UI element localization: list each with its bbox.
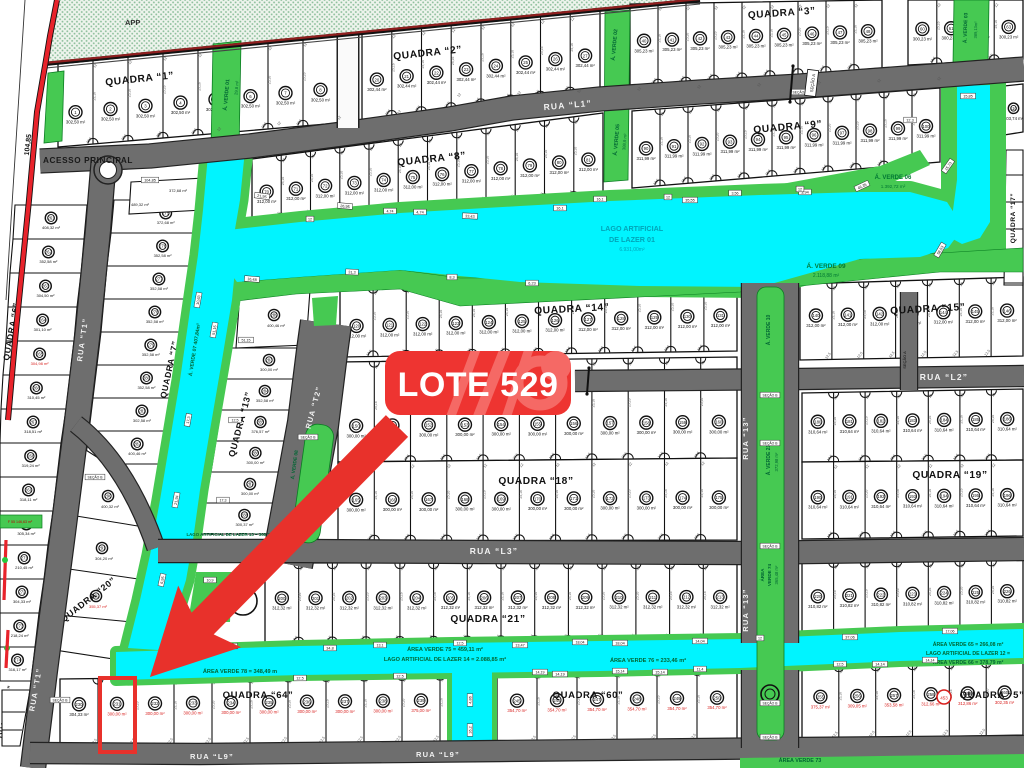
svg-text:172: 172 (606, 496, 614, 501)
svg-text:300,00 m²: 300,00 m² (492, 432, 512, 437)
svg-text:81: 81 (586, 157, 591, 162)
svg-text:312,00 m²: 312,00 m² (838, 322, 858, 327)
svg-text:312,32 m²: 312,32 m² (576, 605, 596, 610)
svg-text:300,00 m²: 300,00 m² (107, 711, 127, 716)
svg-text:120: 120 (353, 324, 361, 329)
svg-text:286: 286 (252, 451, 260, 456)
svg-text:300,00 m²: 300,00 m² (455, 507, 475, 512)
svg-text:25,16: 25,16 (298, 593, 302, 602)
svg-text:25,16: 25,16 (928, 587, 932, 596)
svg-text:312,32 m²: 312,32 m² (340, 605, 360, 610)
svg-text:310,64 m²: 310,64 m² (934, 427, 954, 432)
svg-text:174: 174 (679, 495, 687, 500)
svg-text:25,16: 25,16 (326, 699, 330, 708)
svg-text:305,23 m²: 305,23 m² (802, 41, 822, 46)
svg-text:300,37 m²: 300,37 m² (235, 522, 254, 527)
svg-text:312,00 m²: 312,00 m² (612, 326, 632, 331)
svg-text:310,82 m²: 310,82 m² (808, 604, 828, 609)
svg-text:15,14: 15,14 (616, 670, 625, 674)
svg-text:403,74 m²: 403,74 m² (1004, 116, 1024, 121)
svg-text:192: 192 (877, 494, 885, 499)
svg-text:352,58 m²: 352,58 m² (39, 259, 58, 264)
svg-text:25,16: 25,16 (486, 156, 490, 165)
svg-text:300,00 m²: 300,00 m² (246, 460, 265, 465)
svg-text:155: 155 (534, 422, 542, 427)
svg-text:210: 210 (615, 595, 623, 600)
svg-text:310,82 m²: 310,82 m² (966, 600, 986, 605)
svg-text:12,5: 12,5 (457, 642, 464, 646)
svg-text:302,44 m²: 302,44 m² (575, 63, 595, 68)
svg-text:318,11 m²: 318,11 m² (20, 497, 38, 502)
svg-text:310,64 m²: 310,64 m² (871, 428, 891, 433)
svg-text:210,45 m²: 210,45 m² (15, 565, 34, 570)
svg-text:204: 204 (413, 595, 421, 600)
svg-text:311,99 m²: 311,99 m² (636, 156, 656, 161)
svg-text:12,5: 12,5 (296, 677, 303, 681)
svg-text:SEÇÃO B: SEÇÃO B (87, 475, 103, 480)
svg-text:205: 205 (447, 595, 455, 600)
svg-text:305,23 m²: 305,23 m² (718, 45, 738, 50)
svg-text:25,16: 25,16 (959, 415, 963, 424)
svg-text:26: 26 (553, 57, 558, 62)
svg-text:25,16: 25,16 (686, 33, 690, 42)
svg-text:25,16: 25,16 (534, 592, 538, 601)
svg-text:16,1: 16,1 (597, 198, 604, 202)
svg-text:25,16: 25,16 (537, 697, 541, 706)
svg-text:25,16: 25,16 (339, 171, 343, 180)
svg-text:302,44 m²: 302,44 m² (516, 70, 536, 75)
svg-text:284: 284 (261, 389, 269, 394)
svg-text:302,44 m²: 302,44 m² (397, 84, 417, 89)
svg-text:25,16: 25,16 (303, 72, 307, 81)
svg-text:25,16: 25,16 (991, 307, 995, 316)
svg-text:ÁREA VERDE 75 = 459,11 m²: ÁREA VERDE 75 = 459,11 m² (407, 646, 483, 653)
svg-text:400,46 m²: 400,46 m² (128, 451, 147, 456)
svg-text:25,16: 25,16 (433, 592, 437, 601)
svg-text:12,3: 12,3 (906, 119, 913, 123)
svg-text:25,16: 25,16 (268, 76, 272, 85)
svg-text:300,00 m²: 300,00 m² (346, 433, 366, 438)
svg-text:300,00 m²: 300,00 m² (528, 431, 548, 436)
svg-text:193: 193 (909, 494, 917, 499)
svg-text:QUADRA “60”: QUADRA “60” (553, 690, 624, 701)
svg-text:Á. VERDE 03: Á. VERDE 03 (961, 12, 969, 43)
svg-text:311,99 m²: 311,99 m² (804, 143, 824, 148)
svg-text:25,16: 25,16 (399, 592, 403, 601)
svg-text:QUADRA “21”: QUADRA “21” (450, 614, 525, 625)
svg-text:RUA “L3”: RUA “L3” (470, 546, 518, 556)
svg-text:354,70 m²: 354,70 m² (667, 706, 687, 711)
svg-text:ÁREA VERDE 73: ÁREA VERDE 73 (779, 757, 822, 764)
svg-text:123: 123 (452, 321, 460, 326)
svg-text:354,70 m²: 354,70 m² (707, 705, 727, 710)
svg-text:312,32 m²: 312,32 m² (542, 605, 562, 610)
svg-text:25,16: 25,16 (366, 592, 370, 601)
svg-text:312,00 m²: 312,00 m² (678, 324, 698, 329)
svg-text:25,16: 25,16 (212, 701, 216, 710)
svg-text:95: 95 (784, 135, 789, 140)
svg-text:QUADRA “19”: QUADRA “19” (912, 470, 987, 481)
svg-text:25,16: 25,16 (555, 490, 559, 499)
svg-text:145: 145 (972, 309, 980, 314)
svg-text:250: 250 (713, 695, 721, 700)
svg-text:310,82 m²: 310,82 m² (840, 603, 860, 608)
svg-text:SEÇÃO B: SEÇÃO B (762, 701, 778, 706)
svg-text:372,68 m²: 372,68 m² (157, 220, 176, 225)
svg-text:QUADRA “18”: QUADRA “18” (498, 476, 573, 487)
svg-text:311,99 m²: 311,99 m² (720, 149, 740, 154)
svg-text:15,14: 15,14 (655, 671, 665, 675)
svg-text:352,58 m²: 352,58 m² (146, 319, 165, 324)
svg-text:283: 283 (265, 358, 273, 363)
svg-text:25,16: 25,16 (742, 30, 746, 39)
svg-text:156: 156 (570, 421, 578, 426)
svg-text:230: 230 (75, 702, 83, 707)
svg-text:273: 273 (16, 624, 24, 629)
svg-text:271: 271 (21, 556, 29, 561)
svg-text:13,47: 13,47 (515, 644, 525, 648)
svg-text:96: 96 (812, 133, 817, 138)
svg-text:258: 258 (927, 692, 935, 697)
svg-text:60: 60 (920, 27, 925, 32)
svg-text:312,00 m²: 312,00 m² (432, 182, 452, 187)
svg-text:304,98 m²: 304,98 m² (31, 361, 50, 366)
svg-text:130: 130 (684, 314, 692, 319)
svg-text:25,16: 25,16 (410, 491, 414, 500)
svg-text:262: 262 (45, 250, 53, 255)
svg-text:10,9: 10,9 (207, 579, 214, 583)
svg-text:150: 150 (353, 424, 361, 429)
svg-text:APP: APP (125, 18, 140, 27)
svg-text:141: 141 (844, 312, 852, 317)
svg-text:QUADRA “5”: QUADRA “5” (960, 690, 1024, 701)
svg-text:27: 27 (583, 53, 588, 58)
svg-text:25,16: 25,16 (896, 489, 900, 498)
svg-text:25,16: 25,16 (483, 490, 487, 499)
svg-text:25,16: 25,16 (628, 489, 632, 498)
svg-text:SEÇÃO B: SEÇÃO B (762, 441, 778, 446)
svg-text:98: 98 (868, 128, 873, 133)
svg-text:290: 290 (104, 494, 112, 499)
svg-text:285: 285 (257, 420, 265, 425)
svg-text:25,16: 25,16 (440, 698, 444, 707)
svg-text:42: 42 (698, 36, 703, 41)
svg-text:QUADRA “17”: QUADRA “17” (1010, 193, 1017, 243)
svg-text:45: 45 (782, 32, 787, 37)
svg-text:300,00 m²: 300,00 m² (673, 505, 693, 510)
svg-text:237: 237 (341, 699, 349, 704)
svg-text:268: 268 (27, 454, 35, 459)
svg-text:238: 238 (379, 699, 387, 704)
svg-text:236: 236 (303, 699, 311, 704)
svg-text:ÁREA VERDE 78 = 348,49 m: ÁREA VERDE 78 = 348,49 m (203, 668, 277, 675)
svg-text:ÁREA: ÁREA (759, 568, 765, 582)
svg-text:190: 190 (814, 495, 822, 500)
svg-text:312,00 m²: 312,00 m² (315, 193, 335, 198)
svg-text:SEÇÃO A: SEÇÃO A (902, 351, 907, 369)
svg-text:312,00 m²: 312,00 m² (413, 332, 433, 337)
svg-text:25,16: 25,16 (688, 135, 692, 144)
svg-text:25,16: 25,16 (833, 490, 837, 499)
svg-text:316,17 m²: 316,17 m² (8, 667, 27, 672)
svg-text:ACESSO PRINCIPAL: ACESSO PRINCIPAL (43, 156, 133, 165)
svg-text:25,16: 25,16 (928, 415, 932, 424)
svg-text:25,16: 25,16 (510, 50, 514, 59)
svg-text:220: 220 (814, 594, 822, 599)
svg-text:37,06: 37,06 (845, 636, 855, 640)
svg-text:300,00 m²: 300,00 m² (373, 708, 393, 713)
svg-text:312,66 m²: 312,66 m² (921, 702, 941, 707)
svg-text:300,00 m²: 300,00 m² (709, 505, 729, 510)
svg-text:300,00 m²: 300,00 m² (600, 506, 620, 511)
svg-text:22: 22 (434, 70, 439, 75)
svg-text:25,16: 25,16 (959, 488, 963, 497)
svg-text:265: 265 (36, 352, 44, 357)
svg-text:25,16: 25,16 (991, 488, 995, 497)
svg-text:305,23 m²: 305,23 m² (634, 48, 654, 53)
svg-text:14,14: 14,14 (875, 663, 885, 667)
svg-text:14,19: 14,19 (555, 673, 565, 677)
svg-text:312,00 m²: 312,00 m² (286, 196, 306, 201)
svg-text:353,58 m²: 353,58 m² (884, 703, 904, 708)
svg-text:SEÇÃO B: SEÇÃO B (52, 698, 68, 703)
svg-text:25,16: 25,16 (912, 690, 916, 699)
svg-text:25,16: 25,16 (826, 26, 830, 35)
svg-text:25,16: 25,16 (865, 489, 869, 498)
svg-text:Á. VERDE 21: Á. VERDE 21 (765, 445, 772, 476)
svg-text:25,16: 25,16 (744, 130, 748, 139)
svg-text:279: 279 (147, 343, 155, 348)
svg-text:4,86: 4,86 (469, 696, 473, 703)
svg-text:312,00 m²: 312,00 m² (966, 319, 986, 324)
svg-text:3,56: 3,56 (732, 192, 739, 196)
svg-text:310,64 m²: 310,64 m² (871, 504, 891, 509)
svg-text:74: 74 (381, 178, 386, 183)
svg-text:375,00 m²: 375,00 m² (411, 708, 431, 713)
svg-text:25,16: 25,16 (406, 311, 410, 320)
svg-text:127: 127 (585, 317, 593, 322)
svg-text:169: 169 (498, 497, 506, 502)
svg-text:300,00 m²: 300,00 m² (183, 710, 203, 715)
svg-text:305,23 m²: 305,23 m² (662, 47, 682, 52)
svg-text:355,37 m²: 355,37 m² (89, 604, 108, 609)
svg-text:165: 165 (353, 498, 361, 503)
svg-text:300,00 m²: 300,00 m² (145, 711, 165, 716)
svg-text:31,3: 31,3 (348, 270, 356, 274)
svg-text:312,32 m²: 312,32 m² (306, 606, 326, 611)
svg-text:305,23 m²: 305,23 m² (746, 43, 766, 48)
svg-text:25,16: 25,16 (570, 43, 574, 52)
svg-text:25,16: 25,16 (540, 46, 544, 55)
svg-text:300,00 m²: 300,00 m² (600, 431, 620, 436)
svg-text:94: 94 (756, 137, 761, 142)
svg-text:14,04: 14,04 (695, 640, 705, 644)
svg-text:272: 272 (18, 590, 26, 595)
svg-text:25,16: 25,16 (863, 310, 867, 319)
svg-text:72: 72 (323, 184, 328, 189)
svg-text:173: 173 (643, 496, 651, 501)
svg-text:25,16: 25,16 (991, 586, 995, 595)
svg-text:131: 131 (717, 313, 725, 318)
svg-text:12: 12 (308, 218, 312, 222)
svg-text:LAGO ARTIFICIAL DE LAZER 14 =: LAGO ARTIFICIAL DE LAZER 14 = 2.088,85 m… (384, 656, 506, 663)
svg-text:34,8: 34,8 (326, 647, 333, 651)
svg-text:311,99 m²: 311,99 m² (860, 138, 880, 143)
svg-text:25,16: 25,16 (635, 591, 639, 600)
svg-text:300,00 m²: 300,00 m² (673, 430, 693, 435)
svg-text:302,44 m²: 302,44 m² (486, 73, 506, 78)
svg-text:25: 25 (523, 60, 528, 65)
svg-text:100: 100 (922, 124, 930, 129)
svg-text:25,16: 25,16 (884, 119, 888, 128)
svg-text:312,00 m²: 312,00 m² (446, 331, 466, 336)
svg-text:25,16: 25,16 (374, 401, 378, 410)
svg-text:25,16: 25,16 (391, 63, 395, 72)
svg-text:25,16: 25,16 (637, 304, 641, 313)
svg-text:181: 181 (846, 419, 854, 424)
svg-text:157: 157 (606, 421, 614, 426)
svg-text:25,16: 25,16 (568, 592, 572, 601)
svg-text:175: 175 (715, 495, 723, 500)
svg-text:310,45 m²: 310,45 m² (27, 395, 46, 400)
svg-text:302,44 m²: 302,44 m² (427, 80, 447, 85)
svg-text:11,4: 11,4 (697, 668, 704, 672)
svg-text:97: 97 (840, 130, 845, 135)
svg-text:312,00 m²: 312,00 m² (520, 173, 540, 178)
svg-text:312,00 m²: 312,00 m² (512, 329, 532, 334)
svg-text:310,64 m²: 310,64 m² (840, 504, 860, 509)
svg-text:40: 40 (642, 38, 647, 43)
svg-text:207: 207 (514, 595, 522, 600)
svg-text:92: 92 (700, 142, 705, 147)
svg-text:25,16: 25,16 (174, 701, 178, 710)
svg-text:LOTE 529: LOTE 529 (398, 366, 559, 404)
svg-text:25,16: 25,16 (959, 587, 963, 596)
svg-text:ÁREA VERDE 66 = 378,79 m²: ÁREA VERDE 66 = 378,79 m² (933, 659, 1004, 666)
svg-text:25,16: 25,16 (833, 417, 837, 426)
svg-text:310,64 m²: 310,64 m² (808, 505, 828, 510)
svg-text:245: 245 (513, 698, 521, 703)
svg-text:186: 186 (1004, 417, 1012, 422)
svg-text:233: 233 (189, 701, 197, 706)
svg-text:25,16: 25,16 (332, 592, 336, 601)
svg-text:310,64 m²: 310,64 m² (998, 427, 1018, 432)
svg-text:16,48: 16,48 (247, 277, 257, 282)
svg-text:375,37 m²: 375,37 m² (811, 704, 831, 709)
svg-text:23: 23 (464, 67, 469, 72)
svg-text:6,23: 6,23 (528, 282, 535, 286)
svg-text:213: 213 (717, 595, 725, 600)
svg-text:300,00 m²: 300,00 m² (709, 429, 729, 434)
svg-text:25,16: 25,16 (658, 34, 662, 43)
svg-text:312,32 m²: 312,32 m² (677, 605, 697, 610)
svg-text:225: 225 (972, 590, 980, 595)
svg-text:ÁREA VERDE 65 = 266,08 m²: ÁREA VERDE 65 = 266,08 m² (933, 641, 1004, 648)
svg-text:RUA “13”: RUA “13” (741, 588, 750, 632)
svg-text:125: 125 (518, 319, 526, 324)
svg-text:25,16: 25,16 (697, 695, 701, 704)
svg-text:25,16: 25,16 (421, 60, 425, 69)
svg-text:158: 158 (643, 420, 651, 425)
svg-text:25,16: 25,16 (472, 309, 476, 318)
svg-text:305,23 m²: 305,23 m² (858, 39, 878, 44)
svg-text:310,64 m²: 310,64 m² (966, 503, 986, 508)
svg-text:232: 232 (151, 701, 159, 706)
svg-text:25,16: 25,16 (770, 29, 774, 38)
svg-text:310,64 m²: 310,64 m² (998, 503, 1018, 508)
svg-text:280: 280 (143, 376, 151, 381)
svg-text:25,16: 25,16 (373, 312, 377, 321)
svg-text:300,00 m²: 300,00 m² (564, 506, 584, 511)
svg-text:202: 202 (346, 596, 354, 601)
svg-text:305,23 m²: 305,23 m² (830, 40, 850, 45)
svg-text:90: 90 (644, 146, 649, 151)
svg-text:12: 12 (798, 188, 802, 192)
svg-text:166: 166 (389, 497, 397, 502)
svg-text:263: 263 (42, 284, 50, 289)
svg-text:43: 43 (726, 35, 731, 40)
svg-text:25,16: 25,16 (402, 698, 406, 707)
svg-text:261: 261 (47, 216, 55, 221)
svg-text:249: 249 (673, 696, 681, 701)
svg-text:Á. VERDE 10: Á. VERDE 10 (765, 315, 772, 346)
svg-text:206: 206 (481, 595, 489, 600)
svg-text:200: 200 (278, 596, 286, 601)
svg-text:LAGO ARTIFICIAL: LAGO ARTIFICIAL (601, 224, 664, 233)
svg-text:14,19: 14,19 (536, 671, 545, 675)
svg-text:73: 73 (352, 181, 357, 186)
svg-text:209: 209 (582, 595, 590, 600)
svg-text:18,04: 18,04 (615, 642, 625, 646)
svg-text:124: 124 (485, 320, 493, 325)
svg-text:310,64 m²: 310,64 m² (903, 428, 923, 433)
svg-text:12,5: 12,5 (837, 663, 844, 667)
svg-text:312,00 m²: 312,00 m² (997, 318, 1017, 323)
svg-text:300,00 m²: 300,00 m² (528, 506, 548, 511)
svg-text:25,16: 25,16 (364, 699, 368, 708)
svg-text:78: 78 (498, 166, 503, 171)
svg-text:312,32 m²: 312,32 m² (508, 605, 528, 610)
svg-text:146: 146 (1003, 308, 1011, 313)
svg-text:300,00 m²: 300,00 m² (221, 710, 241, 715)
svg-text:25,16: 25,16 (501, 592, 505, 601)
svg-text:310,64 m²: 310,64 m² (808, 429, 828, 434)
svg-text:12,5: 12,5 (232, 419, 239, 423)
svg-text:304,33 m²: 304,33 m² (69, 712, 89, 717)
svg-text:300,00 m²: 300,00 m² (260, 367, 279, 372)
svg-text:400,32 m²: 400,32 m² (101, 504, 120, 509)
svg-text:25,16: 25,16 (831, 311, 835, 320)
svg-text:389,13m²: 389,13m² (973, 21, 979, 39)
svg-text:2.118,88 m²: 2.118,88 m² (813, 273, 840, 279)
svg-text:352,58 m²: 352,58 m² (154, 253, 173, 258)
svg-text:180: 180 (814, 419, 822, 424)
svg-text:91: 91 (672, 144, 677, 149)
svg-text:305,34 m²: 305,34 m² (17, 531, 36, 536)
svg-text:312,32 m²: 312,32 m² (407, 605, 427, 610)
svg-text:16,1: 16,1 (556, 207, 563, 211)
svg-text:305,23 m²: 305,23 m² (774, 42, 794, 47)
svg-text:312,00 m²: 312,00 m² (374, 187, 394, 192)
svg-text:300,00 m²: 300,00 m² (383, 507, 403, 512)
svg-text:4,74: 4,74 (387, 210, 394, 214)
svg-text:201: 201 (312, 596, 320, 601)
svg-text:354,70 m²: 354,70 m² (627, 706, 647, 711)
svg-text:372,98 m²: 372,98 m² (774, 452, 779, 471)
svg-text:SEÇÃO B: SEÇÃO B (762, 544, 778, 549)
svg-text:25,16: 25,16 (519, 490, 523, 499)
svg-text:312,00 m²: 312,00 m² (545, 328, 565, 333)
